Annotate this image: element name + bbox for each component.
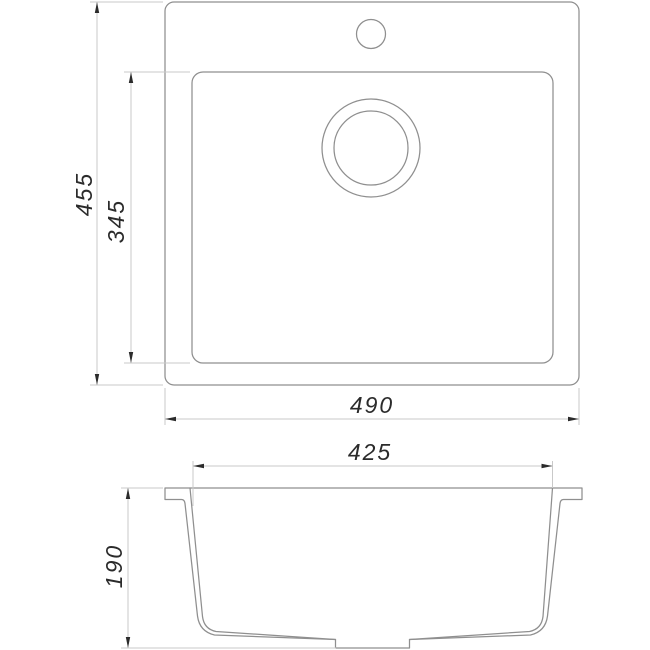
faucet-hole bbox=[357, 20, 386, 49]
dim-bowl-depth-label: 345 bbox=[103, 199, 129, 243]
bowl-outline bbox=[192, 72, 553, 363]
drawing-canvas: 455 345 490 425 190 bbox=[0, 0, 650, 650]
dim-overall-width-arrow-right bbox=[568, 417, 579, 421]
dim-bowl-height-label: 190 bbox=[101, 544, 127, 588]
dim-overall-depth-label: 455 bbox=[71, 172, 97, 216]
dim-bowl-width-arrow-left bbox=[193, 464, 204, 468]
dim-bowl-depth-arrow-top bbox=[129, 72, 133, 83]
dim-overall-depth-arrow-top bbox=[95, 2, 99, 13]
dim-overall-depth: 455 bbox=[71, 2, 163, 385]
dim-overall-width-label: 490 bbox=[350, 392, 394, 418]
top-view bbox=[165, 2, 579, 385]
dim-bowl-height-arrow-bottom bbox=[126, 637, 130, 648]
outer-rim-outline bbox=[165, 2, 579, 385]
side-outer-profile bbox=[165, 488, 582, 648]
dim-overall-width: 490 bbox=[165, 388, 579, 425]
dim-bowl-width: 425 bbox=[193, 439, 553, 506]
side-inner-profile-right bbox=[410, 488, 553, 640]
drain-flange-inner bbox=[334, 111, 408, 185]
side-inner-profile-left bbox=[190, 488, 336, 640]
drain-flange-outer bbox=[322, 99, 420, 197]
side-view bbox=[165, 488, 582, 648]
dim-bowl-depth: 345 bbox=[103, 72, 190, 363]
dim-overall-depth-arrow-bottom bbox=[95, 374, 99, 385]
dim-bowl-depth-arrow-bottom bbox=[129, 352, 133, 363]
dim-bowl-width-arrow-right bbox=[542, 464, 553, 468]
dim-bowl-height: 190 bbox=[101, 488, 336, 648]
dim-bowl-height-arrow-top bbox=[126, 488, 130, 499]
dim-bowl-width-label: 425 bbox=[348, 439, 392, 465]
sink-technical-drawing: 455 345 490 425 190 bbox=[0, 0, 650, 650]
dim-overall-width-arrow-left bbox=[165, 417, 176, 421]
